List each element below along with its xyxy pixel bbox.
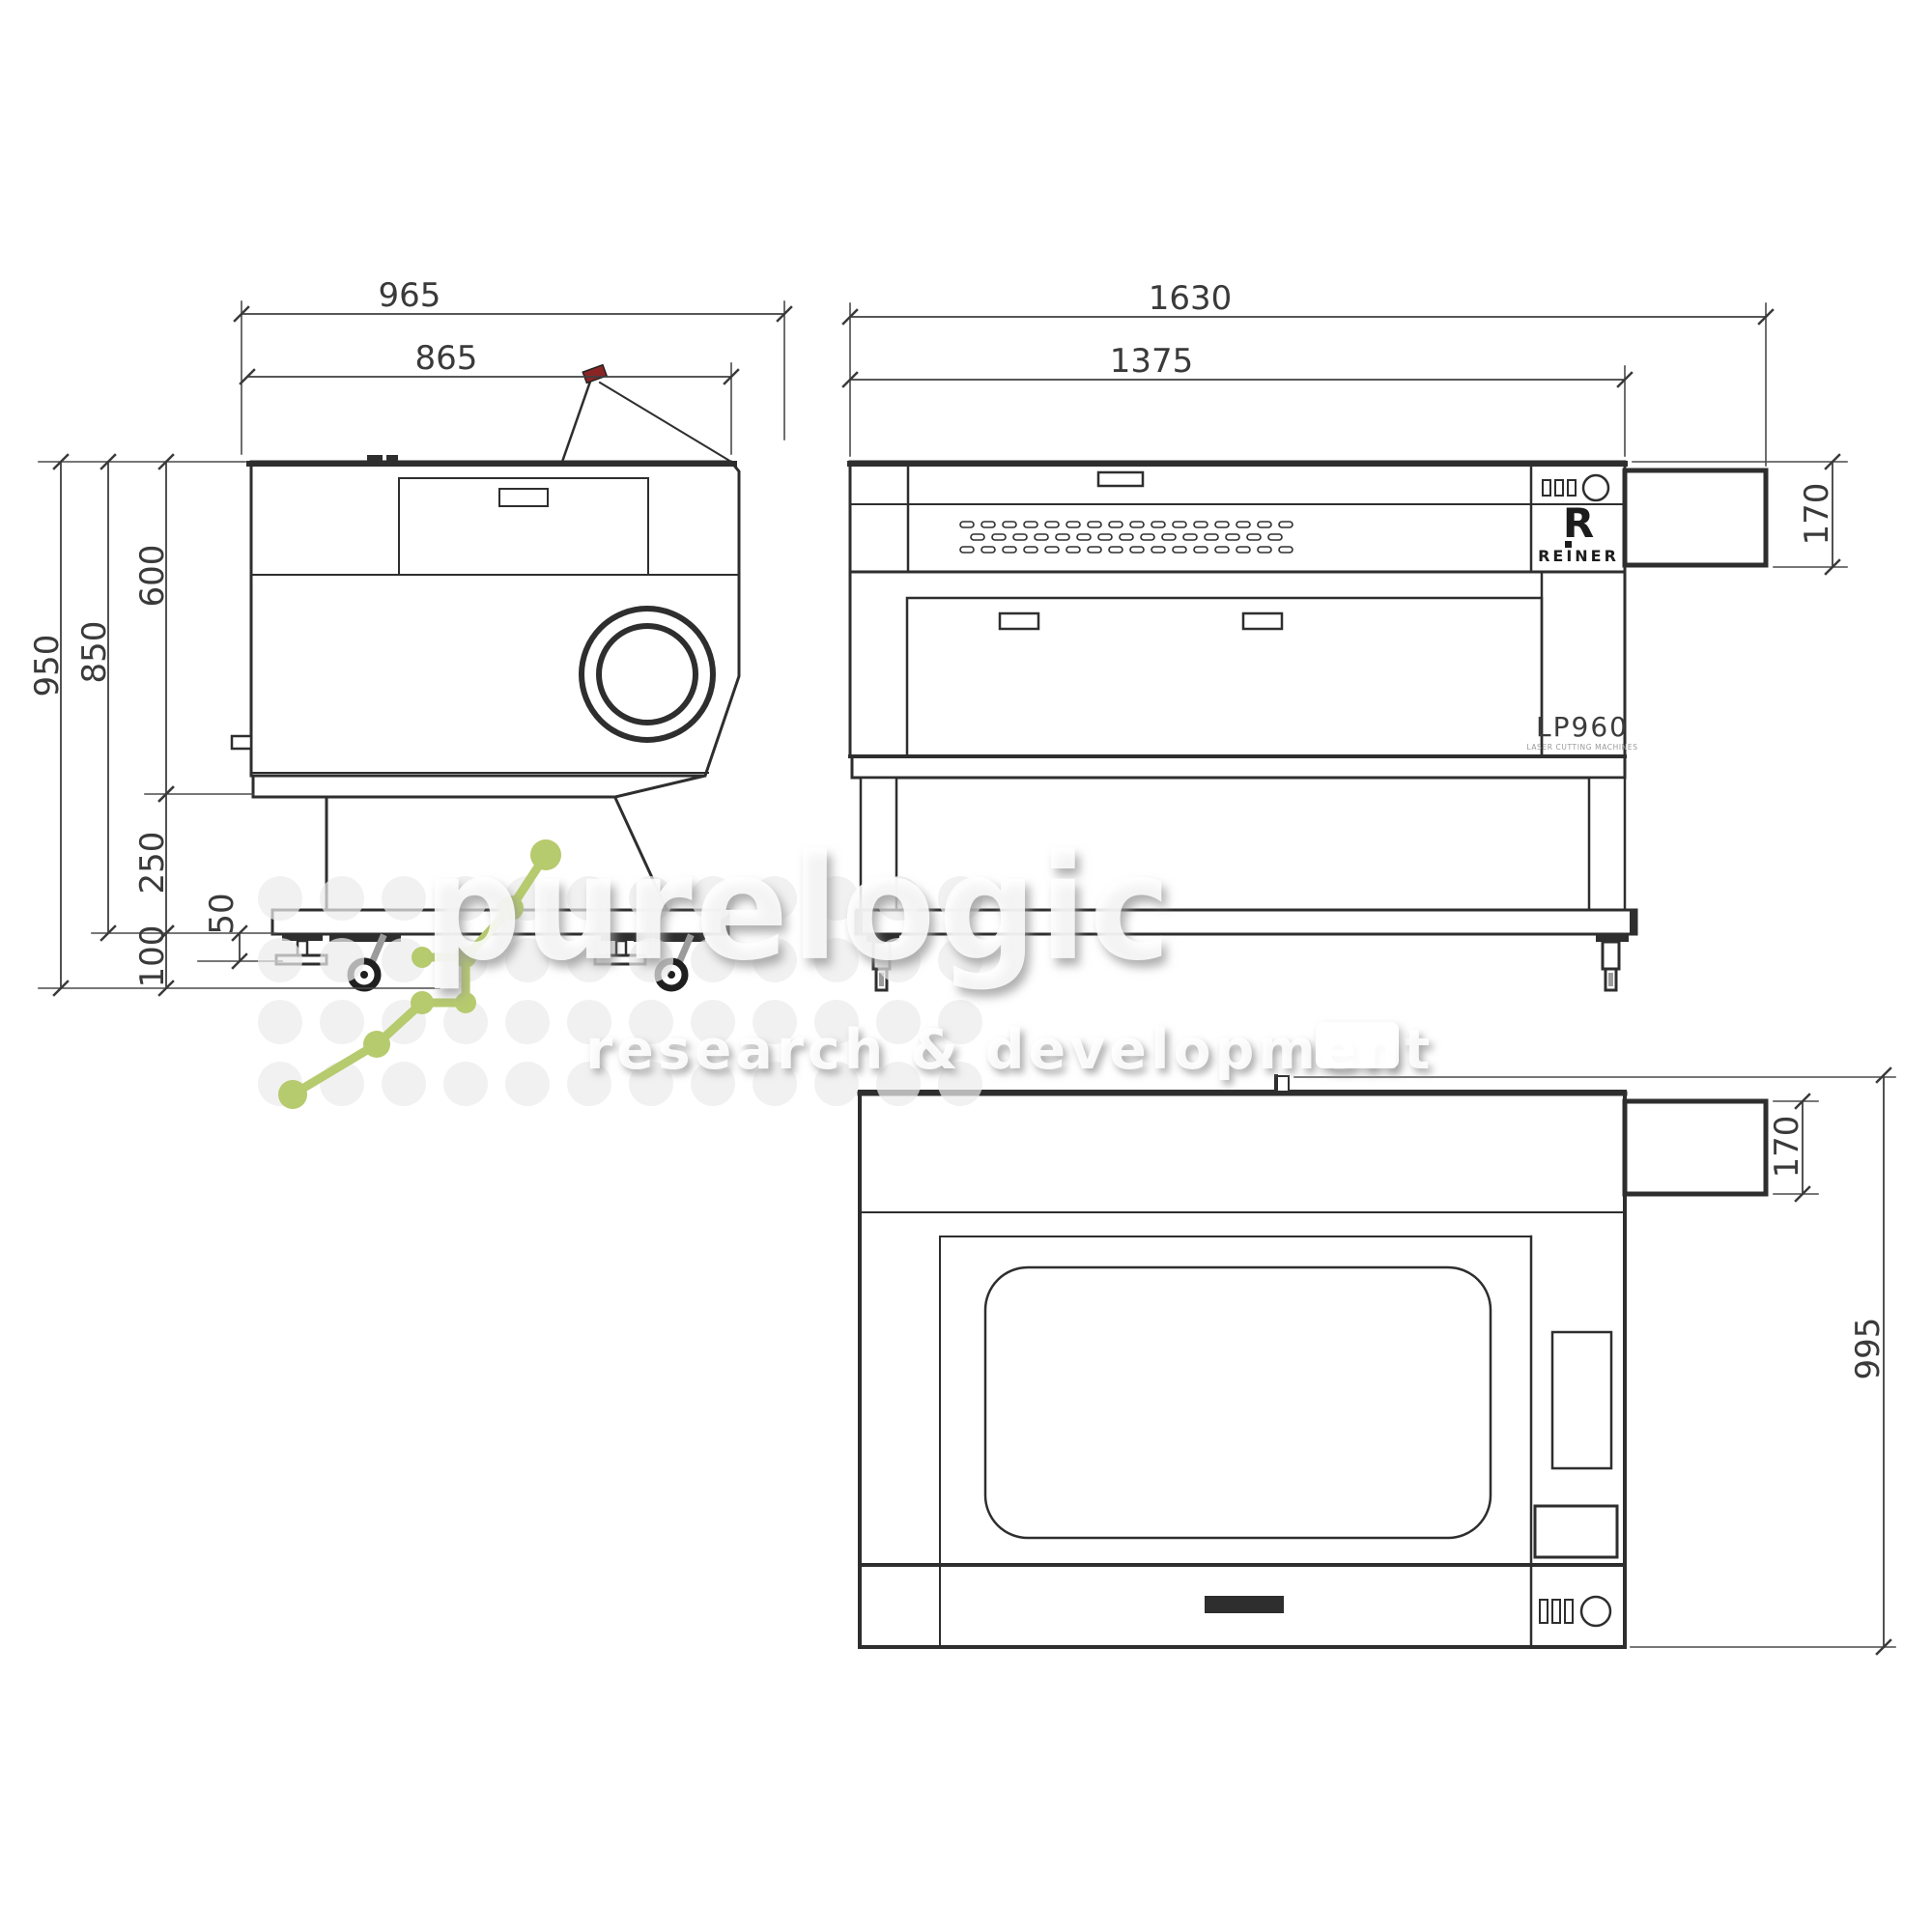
watermark-dot [320,876,364,921]
molecule-node [363,1031,390,1058]
watermark-dot [505,1062,550,1106]
watermark-logo-box [1316,1022,1399,1068]
technical-drawing-page: R REINER LP960 LASER CUTTING MACHINES [0,0,1932,1932]
molecule-node [278,1080,307,1109]
molecule-node [455,992,476,1013]
watermark-brand-text: purelogic [423,824,1174,993]
watermark-dot [505,1000,550,1044]
watermark-dot [320,1000,364,1044]
watermark-dot [320,938,364,982]
watermark-dot [382,1062,426,1106]
molecule-node [411,991,434,1014]
watermark-dot [382,876,426,921]
watermark-dot [258,1000,302,1044]
watermark-dot [258,876,302,921]
watermark-dot [258,938,302,982]
watermark-tagline-text: research & development [585,1018,1434,1082]
watermark-dot [443,1062,488,1106]
